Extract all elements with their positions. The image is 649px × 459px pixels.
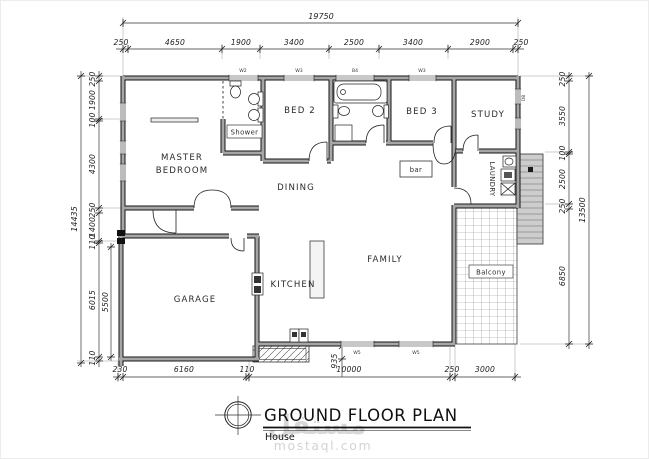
wall-junction-block — [117, 238, 125, 244]
dim-top-4: 2500 — [344, 38, 364, 47]
dim-left-0: 250 — [88, 71, 97, 86]
room-label-study: STUDY — [471, 110, 505, 120]
window-tag: B4 — [352, 68, 358, 74]
dim-bottom-1: 6160 — [174, 365, 194, 374]
drawing-subtitle: House — [265, 432, 295, 443]
window — [120, 141, 126, 154]
room-label-kitchen: KITCHEN — [271, 280, 316, 290]
wall-junction-block — [117, 230, 125, 236]
toilet-tank — [333, 105, 338, 118]
room-label-garage: GARAGE — [174, 295, 217, 305]
dim-right-5: 6850 — [558, 266, 567, 286]
section-symbol-cross — [215, 396, 261, 435]
vanity — [384, 105, 389, 118]
room-label-bed2: BED 2 — [284, 106, 316, 116]
dim-left-5: 1400 — [88, 217, 97, 237]
drawing-title: GROUND FLOOR PLAN — [264, 406, 458, 425]
window — [409, 75, 436, 81]
window — [399, 341, 433, 347]
dim-bottom-0: 230 — [112, 365, 127, 374]
entry-steps — [253, 346, 309, 362]
room-label-master-1: MASTER — [161, 153, 203, 163]
dim-right-4: 250 — [558, 198, 567, 213]
dim-bottom-5: 3000 — [475, 365, 495, 374]
shower-tray — [335, 125, 352, 141]
room-label-master-2: BEDROOM — [156, 166, 209, 176]
toilet-icon — [339, 107, 350, 116]
window-tag: D8 — [521, 95, 527, 102]
window — [284, 75, 314, 81]
dim-left-6: 110 — [88, 234, 97, 249]
toilet-icon — [231, 86, 241, 98]
dim-left-1: 1900 — [88, 90, 97, 110]
dim-top-0: 250 — [113, 38, 128, 47]
dim-left-4: 250 — [88, 202, 97, 217]
bar-label: bar — [410, 166, 422, 174]
window-tag: W2 — [239, 68, 247, 74]
dim-top-total: 19750 — [308, 12, 333, 21]
window-tag: W3 — [295, 68, 303, 74]
room-label-dining: DINING — [277, 183, 315, 193]
laundry-sink-bowl — [505, 158, 513, 165]
laundry-door — [454, 188, 471, 204]
dim-right-1: 3550 — [558, 106, 567, 126]
dim-bottom-2: 110 — [239, 365, 254, 374]
kitchen-sink-bowl — [292, 332, 297, 337]
dim-left-2: 100 — [88, 112, 97, 127]
dim-top-7: 250 — [513, 38, 528, 47]
dim-top-3: 3400 — [284, 38, 304, 47]
dim-top-5: 3400 — [403, 38, 423, 47]
study-door — [463, 135, 478, 151]
toilet-tank — [230, 81, 241, 86]
stair-marker — [528, 167, 533, 172]
dim-left-7: 6015 — [88, 290, 97, 310]
shower-label: Shower — [231, 129, 259, 137]
dim-right-0: 250 — [558, 71, 567, 86]
room-label-family: FAMILY — [367, 255, 402, 265]
window — [120, 164, 126, 181]
dim-step-height: 935 — [330, 353, 339, 368]
dim-left-inner: 5500 — [101, 292, 110, 312]
burner — [254, 276, 261, 283]
dim-top-6: 2900 — [470, 38, 490, 47]
window-tag: W5 — [412, 350, 420, 356]
bathtub-drain — [341, 90, 346, 95]
room-label-bed3: BED 3 — [406, 107, 438, 117]
kitchen-door — [231, 238, 244, 251]
window — [336, 75, 374, 81]
dim-left-total: 14435 — [70, 206, 79, 231]
bed2-door — [309, 142, 327, 161]
window — [229, 75, 258, 81]
hall-door — [153, 210, 176, 233]
dim-top-1: 4650 — [165, 38, 185, 47]
window — [515, 118, 521, 129]
dim-top-2: 1900 — [231, 38, 251, 47]
dim-bottom-3: 10000 — [336, 365, 361, 374]
dim-right-2: 100 — [558, 145, 567, 160]
sink-icon — [249, 94, 260, 105]
balcony: Balcony — [455, 208, 517, 344]
bed3-door — [434, 126, 451, 143]
dim-left-8: 110 — [88, 350, 97, 365]
bath-door — [366, 125, 384, 143]
window-tag: W3 — [418, 68, 426, 74]
balcony-label: Balcony — [476, 269, 506, 277]
dim-left-3: 4300 — [88, 154, 97, 174]
dim-right-3: 2500 — [558, 169, 567, 189]
window-tag: W5 — [353, 350, 361, 356]
floor-plan-sheet: مستقل mostaql.com 19750 250 4650 1900 34… — [0, 0, 649, 459]
room-label-laundry: LAUNDRY — [488, 161, 496, 197]
washer-drum — [504, 172, 512, 178]
window — [341, 341, 374, 347]
kitchen-sink-bowl — [301, 332, 306, 337]
dim-right-total: 13500 — [578, 197, 587, 222]
wardrobe — [151, 118, 198, 122]
burner — [254, 286, 261, 293]
exterior-stairs — [517, 154, 543, 244]
dim-bottom-4: 250 — [444, 365, 459, 374]
window — [515, 89, 521, 104]
master-double-door — [194, 190, 231, 208]
sink-icon — [249, 110, 260, 121]
sink-icon — [373, 106, 384, 117]
window — [120, 103, 126, 121]
floor-plan-drawing: مستقل mostaql.com 19750 250 4650 1900 34… — [1, 1, 649, 459]
